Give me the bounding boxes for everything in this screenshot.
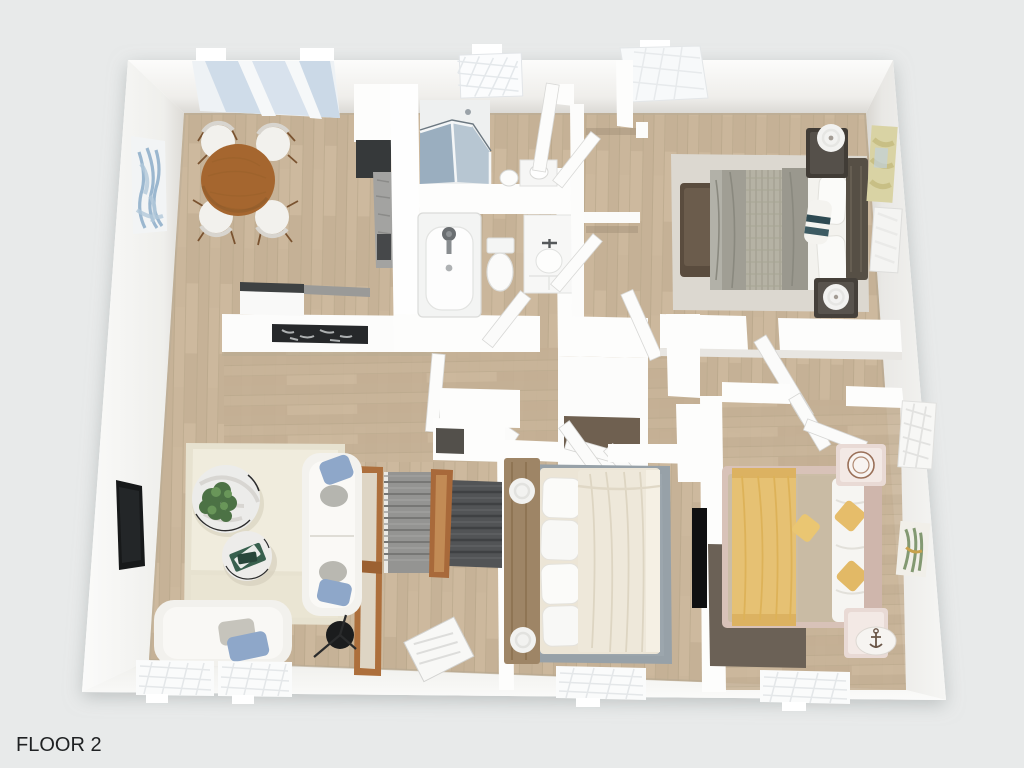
- svg-text:FLOOR 2: FLOOR 2: [16, 734, 102, 756]
